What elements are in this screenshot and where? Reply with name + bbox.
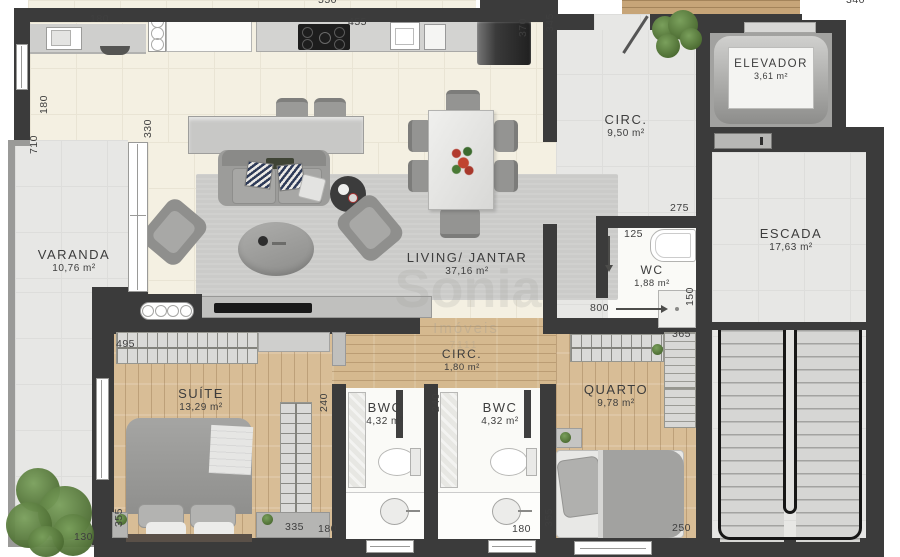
wall: [866, 127, 884, 557]
dim-label: 355: [113, 508, 125, 527]
prep-sink-basin: [395, 28, 414, 45]
dim-label: 180: [90, 13, 109, 25]
bwc2-shower: [440, 392, 458, 488]
quarto-closet: [664, 388, 696, 428]
dim-label: 345: [544, 13, 556, 32]
dim-label: 240: [430, 393, 442, 412]
room-label-quarto: QUARTO9,78 m²: [584, 382, 648, 409]
centerpiece-flowers: [448, 142, 476, 180]
hall-plant: [656, 34, 680, 58]
dim-label: 550: [318, 0, 337, 6]
room-label-suite: SUÍTE13,29 m²: [178, 386, 224, 413]
niche-dot: [155, 305, 167, 317]
dim-label: 150: [684, 287, 696, 306]
watermark-sub: Imóveis: [433, 320, 499, 337]
window-mullion: [580, 548, 646, 549]
dim-label: 365: [672, 328, 691, 340]
dim-label: 250: [672, 522, 691, 534]
wall: [543, 224, 557, 334]
quarto-wardrobe: [570, 334, 664, 362]
room-label-circ-upper: CIRC.9,50 m²: [605, 112, 648, 139]
dim-label: 275: [670, 202, 689, 214]
dim-label: 800: [590, 302, 609, 314]
garden-tree: [28, 526, 64, 557]
bwc2-toilet-tank: [526, 448, 537, 476]
quarto-closet: [664, 332, 696, 388]
dim-label: 180: [512, 523, 531, 535]
hall-plant: [680, 28, 702, 50]
floor-corridor-strip: [622, 0, 800, 15]
bwc1-sink: [380, 498, 409, 525]
room-label-bwc2: BWC4,32 m²: [481, 400, 518, 427]
dim-label: 335: [285, 521, 304, 533]
dining-chair: [440, 208, 480, 238]
dishwasher: [424, 24, 446, 50]
dim-label: 330: [142, 119, 154, 138]
stair-door: [714, 133, 772, 149]
wall: [332, 384, 346, 538]
window-mullion: [137, 144, 138, 290]
dining-chair: [494, 120, 518, 152]
burner-icon: [319, 32, 331, 44]
room-label-bwc1: BWC4,32 m²: [366, 400, 403, 427]
suite-wardrobe: [116, 332, 258, 364]
burner-icon: [334, 39, 345, 50]
room-label-living: LIVING/ JANTAR37,16 m²: [407, 250, 527, 277]
burner-icon: [302, 27, 313, 38]
room-label-circ-lower: CIRC.1,80 m²: [442, 347, 482, 373]
floor-upper-strip: [28, 0, 476, 8]
dim-label: 180: [318, 523, 337, 535]
burner-icon: [302, 39, 313, 50]
wall: [596, 216, 700, 228]
balcony-wall: [8, 140, 30, 146]
suite-bed-throw: [209, 425, 253, 475]
suite-door-cabinet: [332, 332, 346, 366]
suite-headboard: [126, 534, 252, 542]
kitchen-sink-basin: [51, 30, 71, 46]
window-mullion: [21, 46, 22, 88]
dim-label: 340: [846, 0, 865, 6]
niche-dot: [142, 305, 154, 317]
room-label-escada: ESCADA17,63 m²: [760, 226, 822, 253]
balcony-window: [128, 142, 148, 292]
bwc2-toilet: [490, 448, 528, 476]
balcony-wall: [8, 140, 15, 546]
suite-closet-rack: [280, 402, 312, 520]
stairs-divider: [783, 330, 797, 514]
niche-shelf: [140, 302, 194, 320]
bwc1-faucet: [406, 510, 420, 512]
wc-entry-arrow: [616, 308, 662, 310]
dim-label: 130: [74, 531, 93, 543]
bwc2-door-leaf: [524, 390, 531, 438]
plant-icon: [652, 344, 663, 355]
wall: [696, 150, 712, 540]
elevator-step: [744, 22, 816, 33]
island-counter: [188, 116, 364, 154]
bwc1-shower: [348, 392, 366, 488]
throw-pillow: [244, 160, 273, 189]
wall: [832, 33, 846, 127]
tv: [214, 303, 312, 313]
cabinet-circle: [151, 38, 164, 51]
suite-window: [96, 378, 109, 480]
window: [16, 44, 28, 90]
bwc2-faucet: [518, 510, 532, 512]
coffee-table-decor: [272, 242, 286, 245]
window-mullion: [101, 380, 102, 478]
bwc1-toilet-tank: [410, 448, 421, 476]
dim-label: 240: [318, 393, 330, 412]
dim-label: 125: [624, 228, 643, 240]
kitchen-counter-main: [256, 20, 480, 52]
kitchen-faucet-icon: [100, 46, 130, 55]
window-mullion: [370, 546, 410, 547]
dim-label: 355: [543, 508, 555, 527]
plant-icon: [262, 514, 273, 525]
wall: [596, 228, 608, 298]
suite-cabinet: [258, 332, 330, 352]
dim-label: 370: [517, 18, 529, 37]
floor-plan: Sonia Imóveis 7111: [0, 0, 900, 557]
burner-icon: [334, 27, 345, 38]
stair-guard: [712, 322, 868, 330]
dim-label: 495: [116, 338, 135, 350]
dining-chair: [494, 160, 518, 192]
coffee-table-decor: [258, 236, 268, 246]
coffee-table: [238, 222, 314, 276]
room-label-varanda: VARANDA10,76 m²: [38, 247, 110, 274]
window-mullion: [130, 215, 146, 216]
room-label-elevador: ELEVADOR3,61 m²: [734, 58, 808, 81]
dim-label: 455: [348, 16, 367, 28]
room-label-wc: WC1,88 m²: [634, 263, 670, 289]
side-table-plate: [338, 184, 349, 195]
niche-dot: [180, 305, 192, 317]
wc-shower-drain: [675, 307, 679, 311]
wc-bathtub-inner: [655, 233, 691, 258]
dim-label: 180: [38, 95, 50, 114]
window-mullion: [492, 546, 532, 547]
niche-dot: [167, 305, 179, 317]
dim-label: 710: [28, 135, 40, 154]
stair-door-handle: [760, 137, 763, 145]
plant-icon: [560, 432, 571, 443]
wc-door-arrow: [608, 236, 610, 266]
bwc2-sink: [492, 498, 521, 525]
